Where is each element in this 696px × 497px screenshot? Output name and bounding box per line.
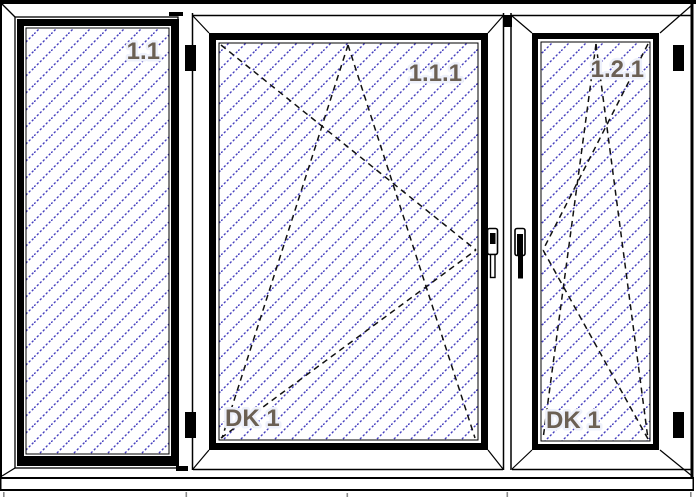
miter-line	[660, 450, 692, 476]
glass-pane-1-1-1[interactable]	[219, 43, 478, 440]
hinge-icon	[185, 45, 196, 71]
window-handle-icon[interactable]	[515, 229, 525, 279]
miter-line	[488, 450, 503, 469]
coupling-mark	[169, 12, 183, 16]
miter-line	[512, 16, 532, 33]
miter-line	[193, 16, 209, 33]
hinge-icon	[185, 412, 196, 438]
opening-type-label-right: DK 1	[546, 407, 601, 434]
dimension-ticks	[3, 492, 692, 497]
tilt-turn-unit-right: 1.2.1 DK 1	[504, 5, 693, 476]
miter-line	[488, 16, 503, 33]
glass-pane-1-1[interactable]	[26, 28, 169, 454]
window-sill	[0, 477, 694, 491]
glass-pane-1-2-1[interactable]	[541, 42, 650, 441]
miter-line	[193, 450, 209, 469]
miter-line	[660, 5, 692, 33]
fixed-pane-unit: 1.1	[2, 4, 188, 476]
tilt-turn-unit-center: 1.1.1 DK 1	[185, 13, 504, 470]
miter-line	[2, 4, 15, 17]
pane-label-1-1: 1.1	[127, 38, 160, 65]
hinge-icon	[673, 45, 684, 71]
hinge-icon	[673, 412, 684, 438]
pane-label-1-2-1: 1.2.1	[591, 56, 644, 83]
window-handle-icon[interactable]	[488, 229, 498, 278]
miter-line	[512, 450, 532, 469]
opening-type-label-center: DK 1	[225, 405, 280, 432]
window-elevation-drawing: 1.1 1.1.1 DK 1	[0, 0, 696, 497]
miter-line	[2, 468, 15, 476]
pane-label-1-1-1: 1.1.1	[409, 60, 462, 87]
coupling-mark	[176, 466, 188, 471]
